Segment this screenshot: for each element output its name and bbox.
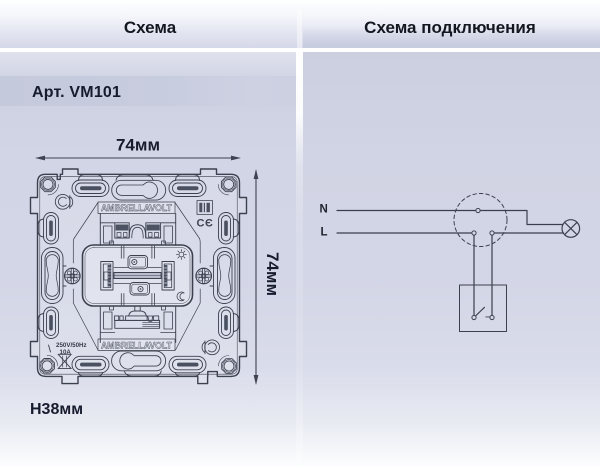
svg-text:74мм: 74мм xyxy=(116,136,160,155)
svg-text:10A: 10A xyxy=(60,349,72,356)
svg-text:Арт. VM101: Арт. VM101 xyxy=(32,84,121,101)
svg-text:H38мм: H38мм xyxy=(30,401,83,418)
svg-text:N: N xyxy=(320,204,328,216)
svg-text:Схема: Схема xyxy=(124,18,177,37)
svg-text:Схема подключения: Схема подключения xyxy=(364,18,536,37)
svg-text:L: L xyxy=(321,227,328,239)
svg-text:CЄ: CЄ xyxy=(197,218,214,230)
svg-text:AMBRELLAVOLT: AMBRELLAVOLT xyxy=(101,203,172,214)
svg-text:AMBRELLAVOLT: AMBRELLAVOLT xyxy=(101,341,172,352)
svg-text:74мм: 74мм xyxy=(263,252,282,296)
svg-text:250V/50Hz: 250V/50Hz xyxy=(56,342,87,349)
